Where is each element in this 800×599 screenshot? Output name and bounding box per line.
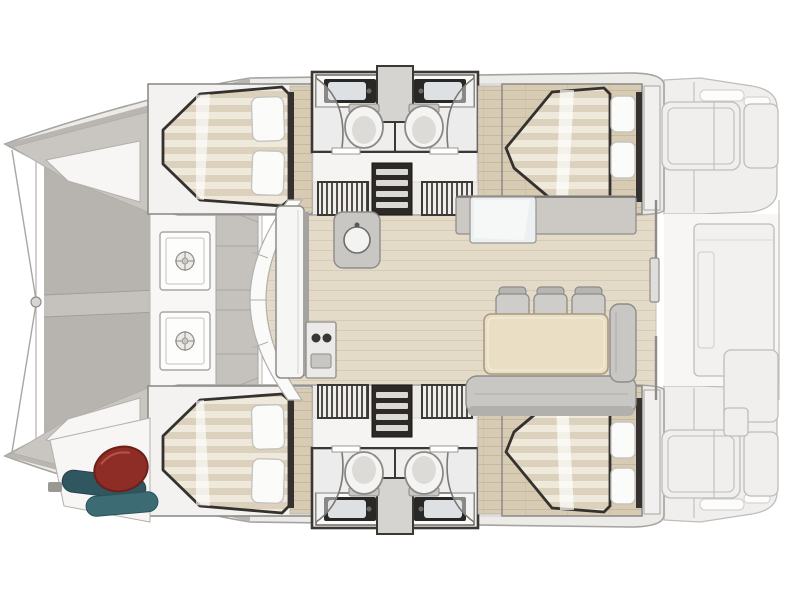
pillow <box>251 96 285 141</box>
dining-table <box>484 314 608 374</box>
settee-arm <box>610 304 636 382</box>
deck-hatch-forward <box>160 232 210 290</box>
faucet-icon <box>355 223 360 228</box>
hatch-handle <box>182 338 188 344</box>
cockpit-ghost <box>662 102 780 498</box>
burner-icon <box>312 334 321 343</box>
galley-forward-counter <box>276 206 304 378</box>
stove <box>306 322 336 378</box>
bridle-ring-icon <box>31 297 41 307</box>
step-tread <box>376 202 408 208</box>
catamaran-floor-plan <box>0 0 800 599</box>
companionway-steps <box>372 163 412 215</box>
cockpit-bench-starboard <box>662 430 740 498</box>
settee-back <box>468 406 634 416</box>
toilet-icon <box>405 104 443 148</box>
step-tread <box>376 191 408 197</box>
galley-sink-unit <box>334 212 380 268</box>
cockpit-bench-port <box>662 102 740 170</box>
head-door <box>430 148 458 154</box>
step-tread <box>376 169 408 175</box>
headboard <box>636 92 642 202</box>
floor-plan-drawing <box>0 0 800 599</box>
cockpit-seat <box>744 432 778 496</box>
pillow <box>611 142 635 178</box>
deck-hatch-aft <box>160 312 210 370</box>
step-tread <box>376 180 408 186</box>
swim-step <box>700 90 744 101</box>
head-door <box>332 148 360 154</box>
cockpit-locker <box>724 408 748 436</box>
bridle-wire <box>12 304 36 452</box>
locker-fitting <box>48 482 62 492</box>
center-column <box>377 66 413 122</box>
burner-icon <box>323 334 332 343</box>
port-hull <box>5 66 777 215</box>
sliding-door-panel <box>650 258 659 302</box>
toilet-seat <box>412 116 436 144</box>
toilet-icon <box>345 104 383 148</box>
foredeck <box>150 198 262 402</box>
aft-bulkhead <box>644 86 660 210</box>
cabin-landing-floor <box>478 86 502 212</box>
hanging-locker <box>318 182 368 215</box>
fridge-gloss <box>474 200 530 240</box>
pillow <box>251 150 285 195</box>
oven <box>311 354 331 368</box>
headboard <box>289 92 294 202</box>
toilet-seat <box>352 116 376 144</box>
pillow <box>611 96 635 132</box>
faucet-icon <box>367 89 372 94</box>
cockpit-seat <box>744 104 778 168</box>
bridle-wire <box>12 150 36 300</box>
faucet-icon <box>419 89 424 94</box>
stove-top <box>306 322 336 378</box>
galley-sink <box>344 227 370 253</box>
hatch-handle <box>182 258 188 264</box>
